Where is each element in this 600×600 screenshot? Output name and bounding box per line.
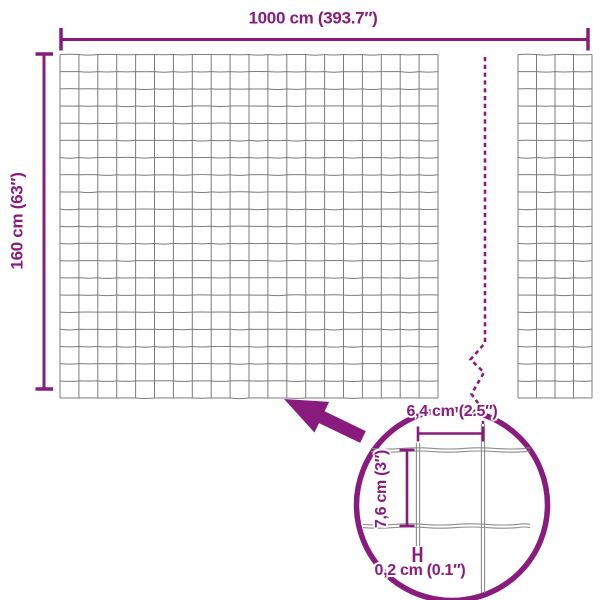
detail-height-dimension-line	[400, 450, 415, 526]
mesh-panel-left	[60, 54, 438, 398]
height-dimension-label: 160 cm (63″)	[9, 172, 26, 269]
product-dimension-diagram: 1000 cm (393.7″) 160 cm (63″) 6,4 cm (2.…	[0, 0, 600, 600]
detail-wire-thickness-label: 0,2 cm (0.1″)	[375, 563, 466, 579]
diagram-graphics	[0, 0, 600, 600]
zoom-arrow-icon	[284, 399, 366, 443]
height-dimension-line	[36, 54, 54, 389]
wire-thickness-marker	[414, 547, 421, 562]
detail-width-dimension-line	[418, 427, 483, 442]
dashed-break-line	[471, 57, 486, 424]
mesh-panel-right	[518, 54, 592, 398]
width-dimension-label: 1000 cm (393.7″)	[248, 10, 377, 27]
detail-opening-width-label: 6,4 cm (2.5″)	[407, 404, 498, 420]
width-dimension-line	[61, 28, 588, 51]
detail-opening-height-label: 7,6 cm (3″)	[374, 450, 390, 528]
